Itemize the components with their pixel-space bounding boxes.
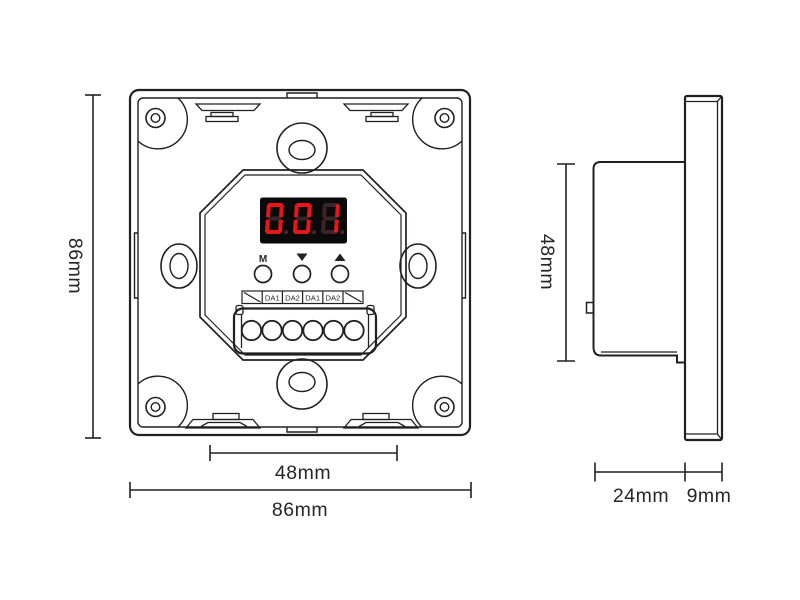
segment — [340, 231, 344, 235]
bottom-mounting-slots — [186, 414, 418, 429]
top-mounting-slots — [196, 104, 408, 122]
corner-screws — [146, 109, 454, 417]
terminal-label: DA1 — [265, 294, 280, 303]
segment — [267, 217, 281, 221]
strip-slash-left — [244, 293, 261, 303]
terminal-screw — [344, 321, 363, 340]
front-view: M DA1 DA2 DA1 DA2 — [130, 90, 470, 435]
terminal-screw — [303, 321, 322, 340]
side-plate-edges — [686, 97, 722, 440]
segment — [295, 217, 309, 221]
terminal-screw — [262, 321, 281, 340]
dimension-drawing-svg: M DA1 DA2 DA1 DA2 — [0, 0, 800, 600]
box-depth-label: 24mm — [613, 485, 669, 507]
terminal-label-strip: DA1 DA2 DA1 DA2 — [242, 291, 363, 304]
side-clip — [587, 303, 594, 314]
up-button — [332, 266, 349, 283]
front-inner-border — [138, 98, 462, 427]
side-plate — [685, 96, 722, 440]
strip-slash-right — [345, 293, 362, 303]
terminal-block — [234, 306, 376, 354]
terminal-label: DA2 — [326, 294, 341, 303]
side-height-label: 48mm — [536, 234, 558, 290]
side-dimensions: 48mm 24mm 9mm — [536, 164, 731, 507]
front-outer-border — [130, 90, 470, 435]
terminal-screw — [242, 321, 261, 340]
side-view — [587, 96, 723, 440]
front-terminal-width-label: 48mm — [275, 462, 331, 484]
side-rear-box — [594, 162, 686, 363]
triangle-up-icon — [335, 254, 346, 262]
panel-buttons: M — [255, 254, 349, 283]
front-height-label: 86mm — [64, 238, 86, 294]
top-center-tab — [287, 93, 317, 98]
drawing-canvas: M DA1 DA2 DA1 DA2 — [0, 0, 800, 600]
bottom-center-notch — [287, 427, 317, 432]
terminal-screw — [324, 321, 343, 340]
segment — [323, 217, 337, 221]
down-button — [294, 266, 311, 283]
terminal-label: DA2 — [285, 294, 300, 303]
front-width-label: 86mm — [272, 499, 328, 521]
segment — [284, 231, 288, 235]
plate-depth-label: 9mm — [687, 485, 732, 507]
segment — [312, 231, 316, 235]
mode-button — [255, 266, 272, 283]
terminal-screw — [283, 321, 302, 340]
terminal-label: DA1 — [305, 294, 320, 303]
mode-button-label: M — [259, 254, 267, 265]
triangle-down-icon — [297, 254, 308, 262]
